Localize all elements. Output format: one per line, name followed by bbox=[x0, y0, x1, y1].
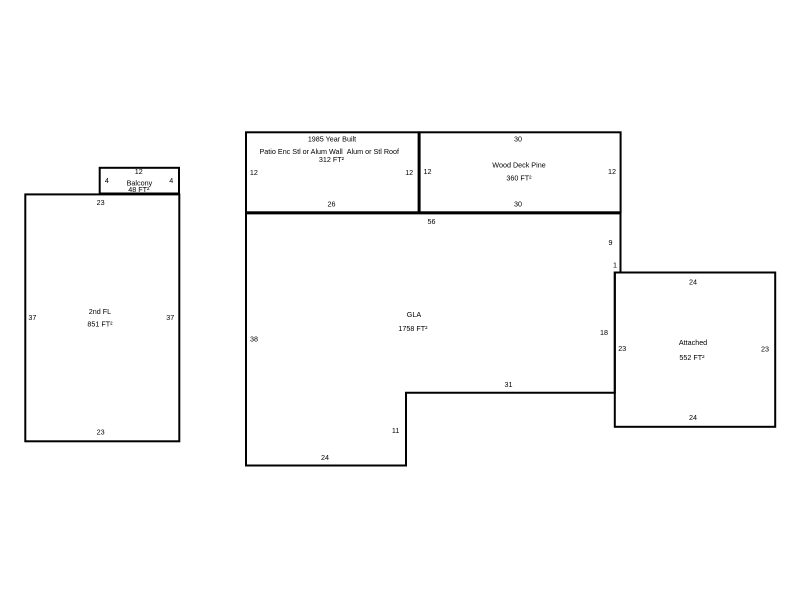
svg-text:851 FT²: 851 FT² bbox=[87, 320, 113, 329]
svg-text:Attached: Attached bbox=[679, 338, 707, 347]
svg-text:Wood Deck Pine: Wood Deck Pine bbox=[492, 161, 545, 170]
svg-text:2nd FL: 2nd FL bbox=[89, 307, 111, 316]
svg-text:12: 12 bbox=[424, 167, 432, 176]
svg-text:12: 12 bbox=[250, 168, 258, 177]
svg-text:360 FT²: 360 FT² bbox=[506, 174, 532, 183]
svg-text:30: 30 bbox=[514, 200, 522, 209]
svg-text:18: 18 bbox=[600, 328, 608, 337]
svg-text:552 FT²: 552 FT² bbox=[679, 353, 705, 362]
svg-text:38: 38 bbox=[250, 335, 258, 344]
svg-text:24: 24 bbox=[689, 278, 697, 287]
svg-text:12: 12 bbox=[135, 167, 143, 176]
svg-text:1758 FT²: 1758 FT² bbox=[398, 324, 428, 333]
svg-text:1: 1 bbox=[613, 261, 617, 270]
svg-text:30: 30 bbox=[514, 135, 522, 144]
svg-text:9: 9 bbox=[609, 238, 613, 247]
svg-text:23: 23 bbox=[761, 345, 769, 354]
svg-text:56: 56 bbox=[428, 217, 436, 226]
svg-text:312 FT²: 312 FT² bbox=[319, 155, 345, 164]
svg-text:12: 12 bbox=[405, 168, 413, 177]
svg-text:24: 24 bbox=[689, 413, 697, 422]
svg-text:37: 37 bbox=[28, 313, 36, 322]
svg-text:4: 4 bbox=[169, 176, 173, 185]
svg-text:GLA: GLA bbox=[407, 310, 422, 319]
svg-text:23: 23 bbox=[618, 344, 626, 353]
svg-text:48 FT²: 48 FT² bbox=[128, 185, 150, 194]
svg-text:31: 31 bbox=[505, 380, 513, 389]
svg-text:11: 11 bbox=[392, 426, 399, 435]
svg-text:1985 Year Built: 1985 Year Built bbox=[308, 134, 356, 143]
svg-text:23: 23 bbox=[97, 198, 105, 207]
svg-text:37: 37 bbox=[166, 313, 174, 322]
svg-text:4: 4 bbox=[105, 176, 109, 185]
svg-text:24: 24 bbox=[321, 453, 329, 462]
svg-text:12: 12 bbox=[608, 167, 616, 176]
svg-text:23: 23 bbox=[97, 427, 105, 436]
svg-text:26: 26 bbox=[328, 200, 336, 209]
